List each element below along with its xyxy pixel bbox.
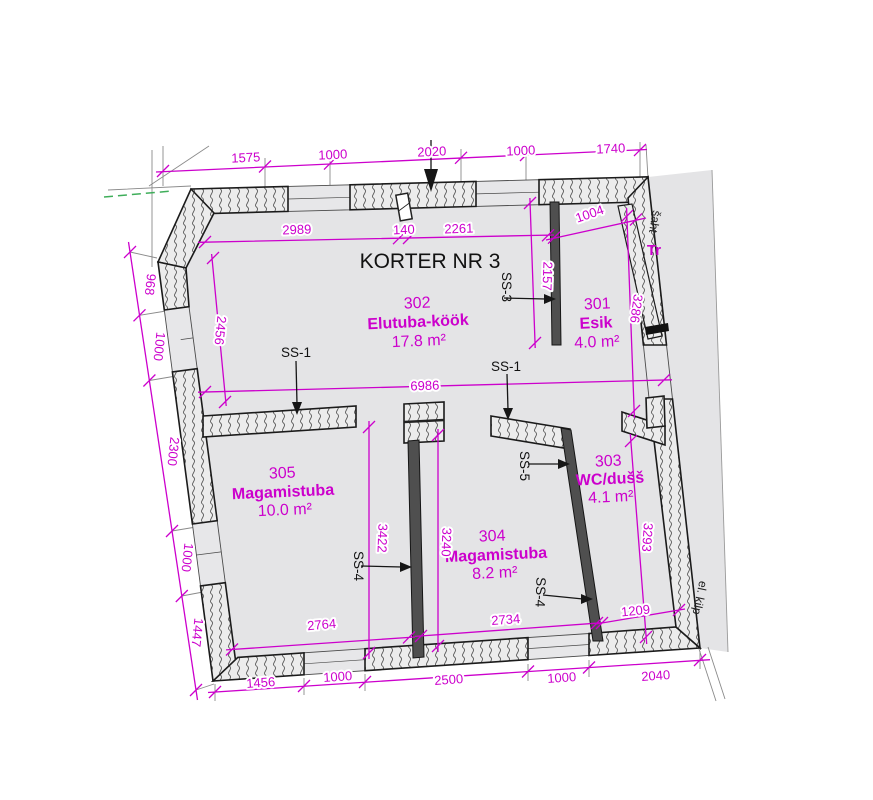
dim-label: 3240 [438,527,454,556]
dim-label: 1000 [318,146,348,162]
room-number: 304 [478,527,506,545]
wall-tag-ss1-right: SS-1 [491,359,521,374]
dim-label: 1447 [189,617,207,647]
dim-label: 1740 [596,140,626,156]
wall-tag-ss5: SS-5 [517,451,532,481]
wall-left-1 [158,262,189,310]
dim-label: 1456 [246,674,276,691]
dim-label: 2300 [165,436,183,466]
dim-label: 968 [142,273,159,296]
wall-top-2 [350,181,476,209]
wall-mid-right-step [646,396,665,428]
room-area: 8.2 m² [472,564,519,583]
plan-title: KORTER NR 3 [360,250,501,273]
dim-label: 1575 [231,149,261,165]
dim-label: 2456 [212,315,230,345]
dim-label: 1000 [506,142,536,158]
dim-label: 2734 [491,611,521,628]
room-number: 301 [584,295,612,313]
dim-label: 3422 [374,523,390,552]
room-name: WC/dušš [576,470,645,490]
dim-label: 1209 [620,602,650,620]
dim-label: 2157 [539,261,555,290]
dim-label: 3293 [639,522,656,552]
dim-label: 1000 [323,668,353,685]
dim-label: 1000 [151,331,169,361]
dim-top [156,144,647,177]
dim-label: 1000 [179,542,197,572]
floor-plan-page: KORTER NR 3 302 Elutuba-köök 17.8 m² 301… [0,0,873,800]
stairwell-label: Tr [647,242,661,259]
wall-tag-ss4-left: SS-4 [351,551,366,582]
dim-label: 2261 [444,221,473,237]
floor-plan-drawing: KORTER NR 3 302 Elutuba-köök 17.8 m² 301… [0,0,873,800]
dim-label: 140 [393,222,415,238]
dim-label: 2764 [307,616,337,633]
room-area: 4.1 m² [588,488,635,507]
wall-tag-ss1-left: SS-1 [281,345,311,360]
wall-tag-ss3: SS-3 [499,272,514,302]
room-area: 17.8 m² [391,332,447,351]
dim-label: 1000 [547,669,577,686]
room-number: 302 [403,294,431,312]
room-area: 4.0 m² [574,333,621,352]
dim-label: 6986 [410,378,439,394]
wall-tag-ss4-right: SS-4 [532,577,548,608]
dim-label: 2989 [282,222,311,238]
dim-label: 2500 [434,671,464,688]
utility-dashed-line [104,191,172,197]
room-name: Esik [579,314,613,332]
dim-label: 2020 [417,143,447,159]
dim-label: 2040 [641,667,671,684]
room-number: 305 [269,464,297,482]
room-number: 303 [595,452,623,470]
room-area: 10.0 m² [257,501,313,520]
